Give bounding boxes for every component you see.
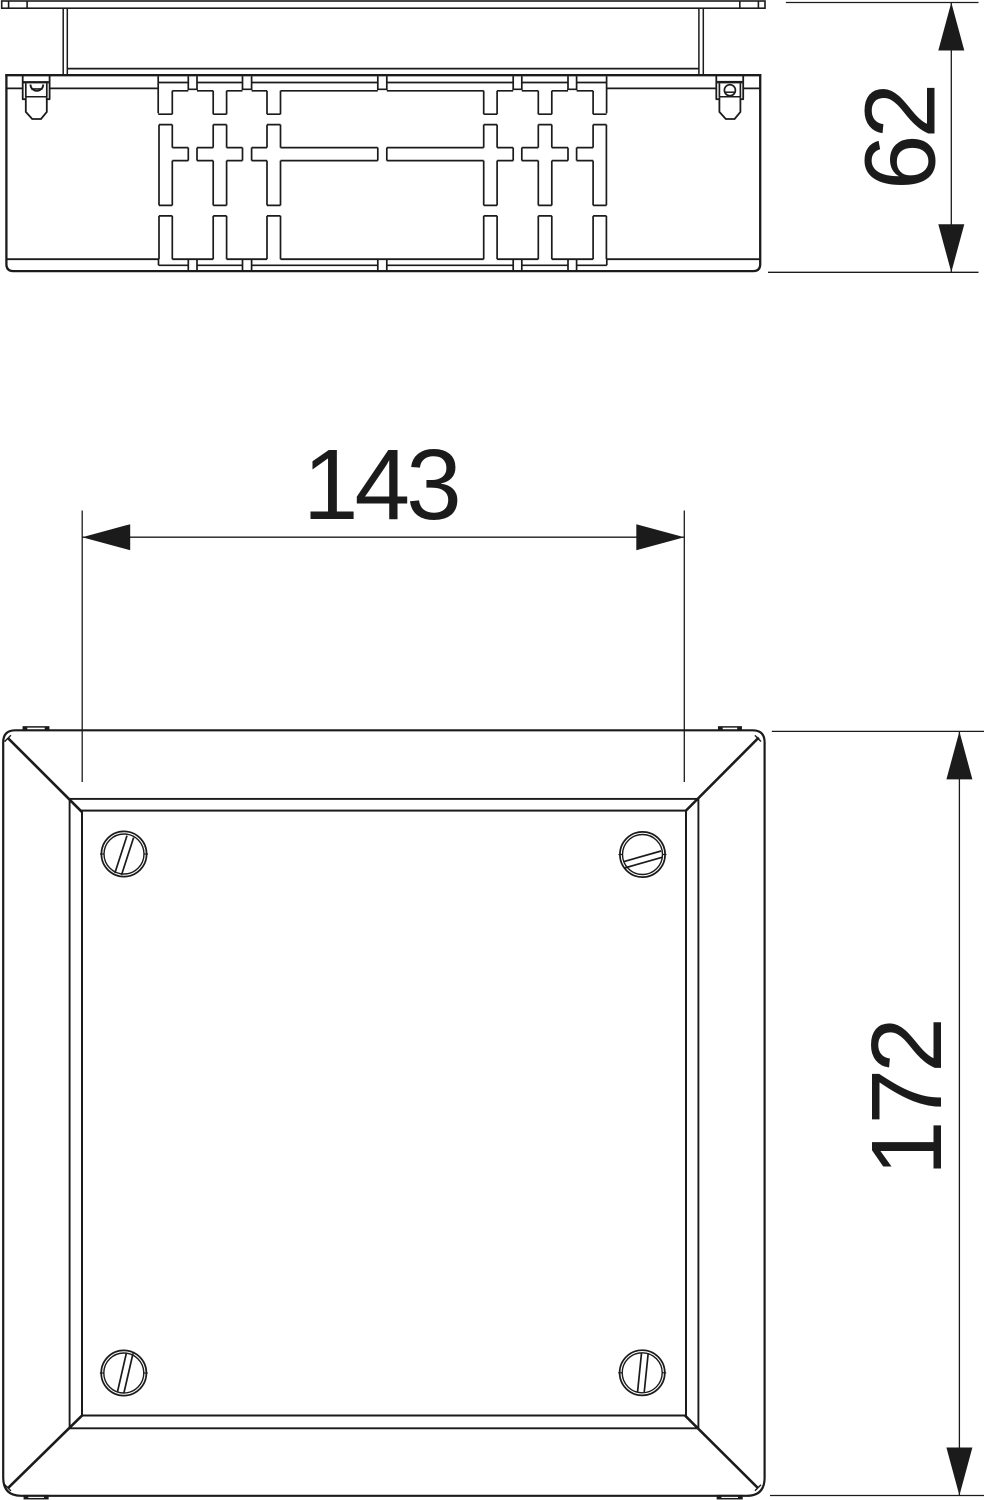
svg-text:62: 62 [844,87,956,190]
svg-text:172: 172 [851,1021,963,1176]
svg-text:143: 143 [303,429,458,541]
